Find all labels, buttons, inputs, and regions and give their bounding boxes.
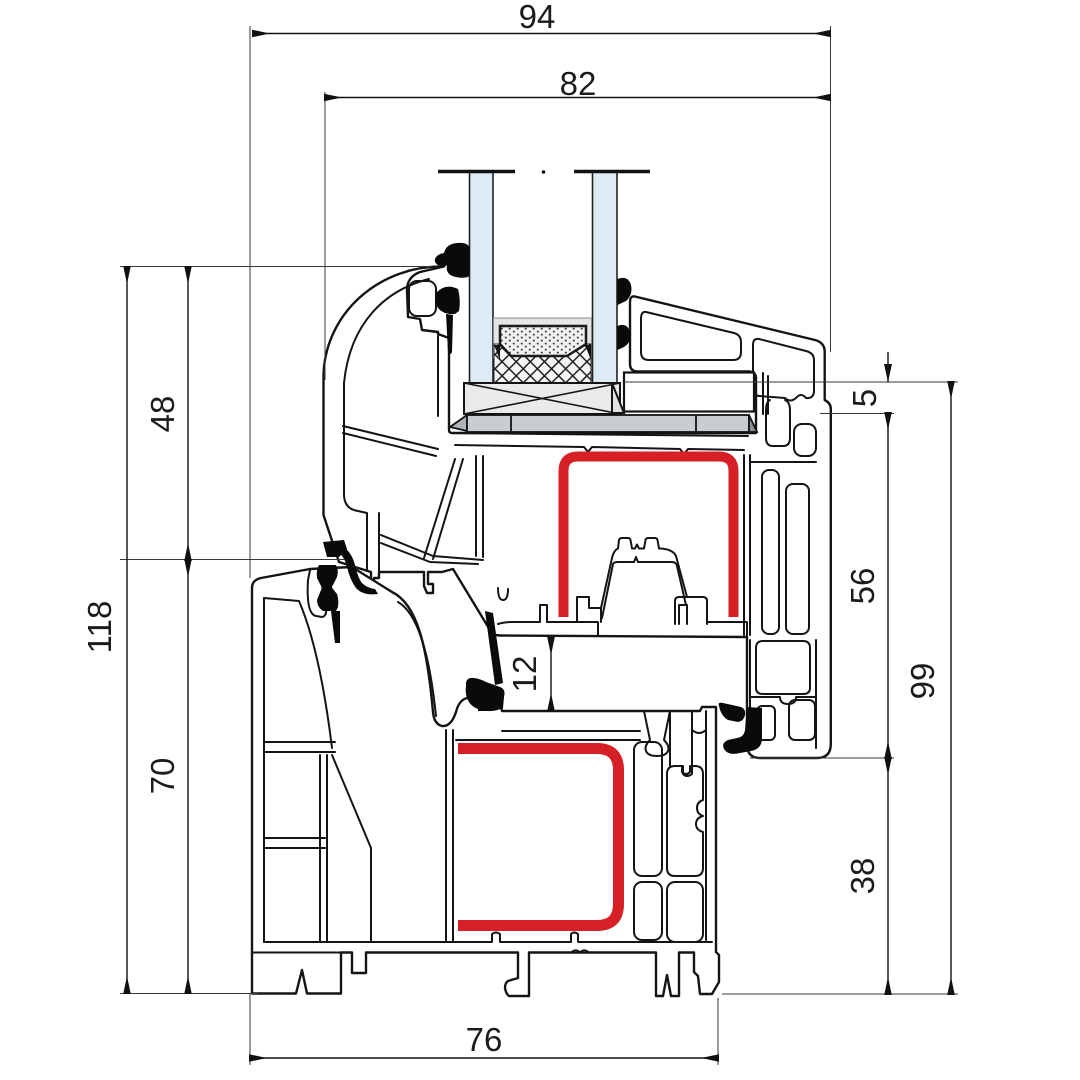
svg-text:82: 82 (560, 65, 597, 102)
svg-text:70: 70 (144, 758, 181, 795)
svg-text:48: 48 (144, 396, 181, 433)
svg-text:12: 12 (506, 656, 543, 693)
svg-text:99: 99 (904, 663, 941, 700)
svg-text:118: 118 (81, 601, 118, 654)
svg-text:56: 56 (844, 568, 881, 605)
svg-text:38: 38 (844, 858, 881, 895)
svg-text:5: 5 (846, 389, 883, 407)
svg-text:94: 94 (519, 0, 556, 35)
svg-text:76: 76 (466, 1021, 503, 1058)
